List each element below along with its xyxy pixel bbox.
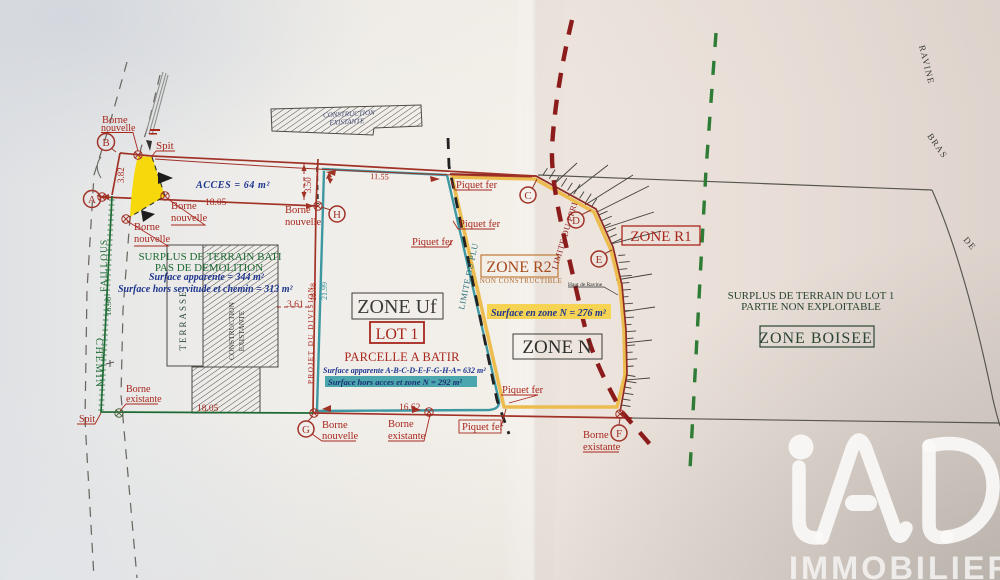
svg-text:G: G (302, 424, 310, 436)
svg-text:ZONE R2: ZONE R2 (486, 259, 551, 276)
svg-text:11.55: 11.55 (370, 171, 389, 182)
svg-text:ZONE N: ZONE N (522, 337, 591, 358)
svg-text:Piquet fer: Piquet fer (456, 180, 498, 191)
svg-text:nouvelle: nouvelle (285, 217, 321, 228)
svg-text:Surface apparente A-B-C-D-E-F-: Surface apparente A-B-C-D-E-F-G-H-A= 632… (323, 366, 486, 375)
svg-text:Borne: Borne (285, 205, 311, 216)
svg-text:21.99: 21.99 (320, 282, 329, 300)
svg-text:Surface hors servitude et chem: Surface hors servitude et chemin = 313 m… (118, 284, 294, 295)
svg-text:Spit: Spit (79, 414, 95, 425)
svg-text:PARCELLE A BATIR: PARCELLE A BATIR (344, 350, 460, 364)
svg-text:3.82: 3.82 (116, 167, 126, 183)
svg-text:PAS DE DEMOLITION: PAS DE DEMOLITION (155, 262, 263, 274)
svg-text:Piquet fer: Piquet fer (459, 219, 501, 230)
svg-text:ZONE Uf: ZONE Uf (357, 296, 437, 318)
svg-text:existante: existante (583, 442, 621, 453)
svg-text:C: C (524, 190, 531, 202)
svg-text:NON CONSTRUCTIBLE: NON CONSTRUCTIBLE (480, 277, 563, 285)
svg-text:Spit: Spit (156, 140, 174, 152)
svg-text:3.50: 3.50 (303, 177, 313, 193)
svg-text:PROJET DU DIVISION: PROJET DU DIVISION (307, 286, 315, 384)
svg-text:E: E (596, 254, 603, 266)
svg-text:Piquet fer: Piquet fer (412, 237, 454, 248)
svg-text:Piquet fer: Piquet fer (462, 422, 504, 433)
svg-text:existante: existante (126, 394, 162, 405)
svg-text:Surface hors acces et zone N =: Surface hors acces et zone N = 292 m² (328, 377, 462, 387)
svg-text:16.62: 16.62 (399, 403, 421, 413)
svg-text:Piquet fer: Piquet fer (502, 385, 544, 396)
svg-text:LOT 1: LOT 1 (376, 326, 419, 343)
svg-text:CONSTRUCTION: CONSTRUCTION (227, 301, 236, 360)
svg-text:ACCES = 64 m²: ACCES = 64 m² (195, 180, 270, 191)
svg-text:A: A (88, 194, 96, 206)
svg-text:nouvelle: nouvelle (134, 234, 170, 245)
svg-text:F: F (616, 428, 622, 440)
svg-text:ZONE BOISEE: ZONE BOISEE (759, 330, 873, 347)
svg-text:CHEMIN: CHEMIN (93, 338, 104, 388)
svg-text:Borne: Borne (583, 430, 609, 441)
svg-text:ZONE R1: ZONE R1 (630, 229, 691, 245)
svg-text:18.05: 18.05 (205, 198, 227, 208)
svg-text:existante: existante (388, 431, 426, 442)
svg-text:IMMOBILIER: IMMOBILIER (789, 550, 1000, 580)
svg-text:TERRASSE: TERRASSE (178, 289, 188, 350)
svg-text:EXISTANTE: EXISTANTE (237, 310, 246, 351)
svg-text:Borne: Borne (322, 420, 348, 431)
svg-text:PARTIE NON EXPLOITABLE: PARTIE NON EXPLOITABLE (741, 301, 881, 313)
svg-text:18.96: 18.96 (103, 297, 113, 316)
svg-text:nouvelle: nouvelle (171, 213, 207, 224)
svg-text:H: H (333, 209, 341, 221)
svg-text:3.61: 3.61 (287, 300, 304, 310)
svg-text:nouvelle: nouvelle (322, 431, 358, 442)
svg-text:B: B (102, 137, 109, 149)
svg-text:18.05: 18.05 (197, 404, 219, 414)
svg-text:Surface en zone N = 276 m²: Surface en zone N = 276 m² (491, 308, 607, 319)
svg-text:Borne: Borne (388, 419, 414, 430)
svg-text:FAILLOUS: FAILLOUS (100, 239, 110, 292)
